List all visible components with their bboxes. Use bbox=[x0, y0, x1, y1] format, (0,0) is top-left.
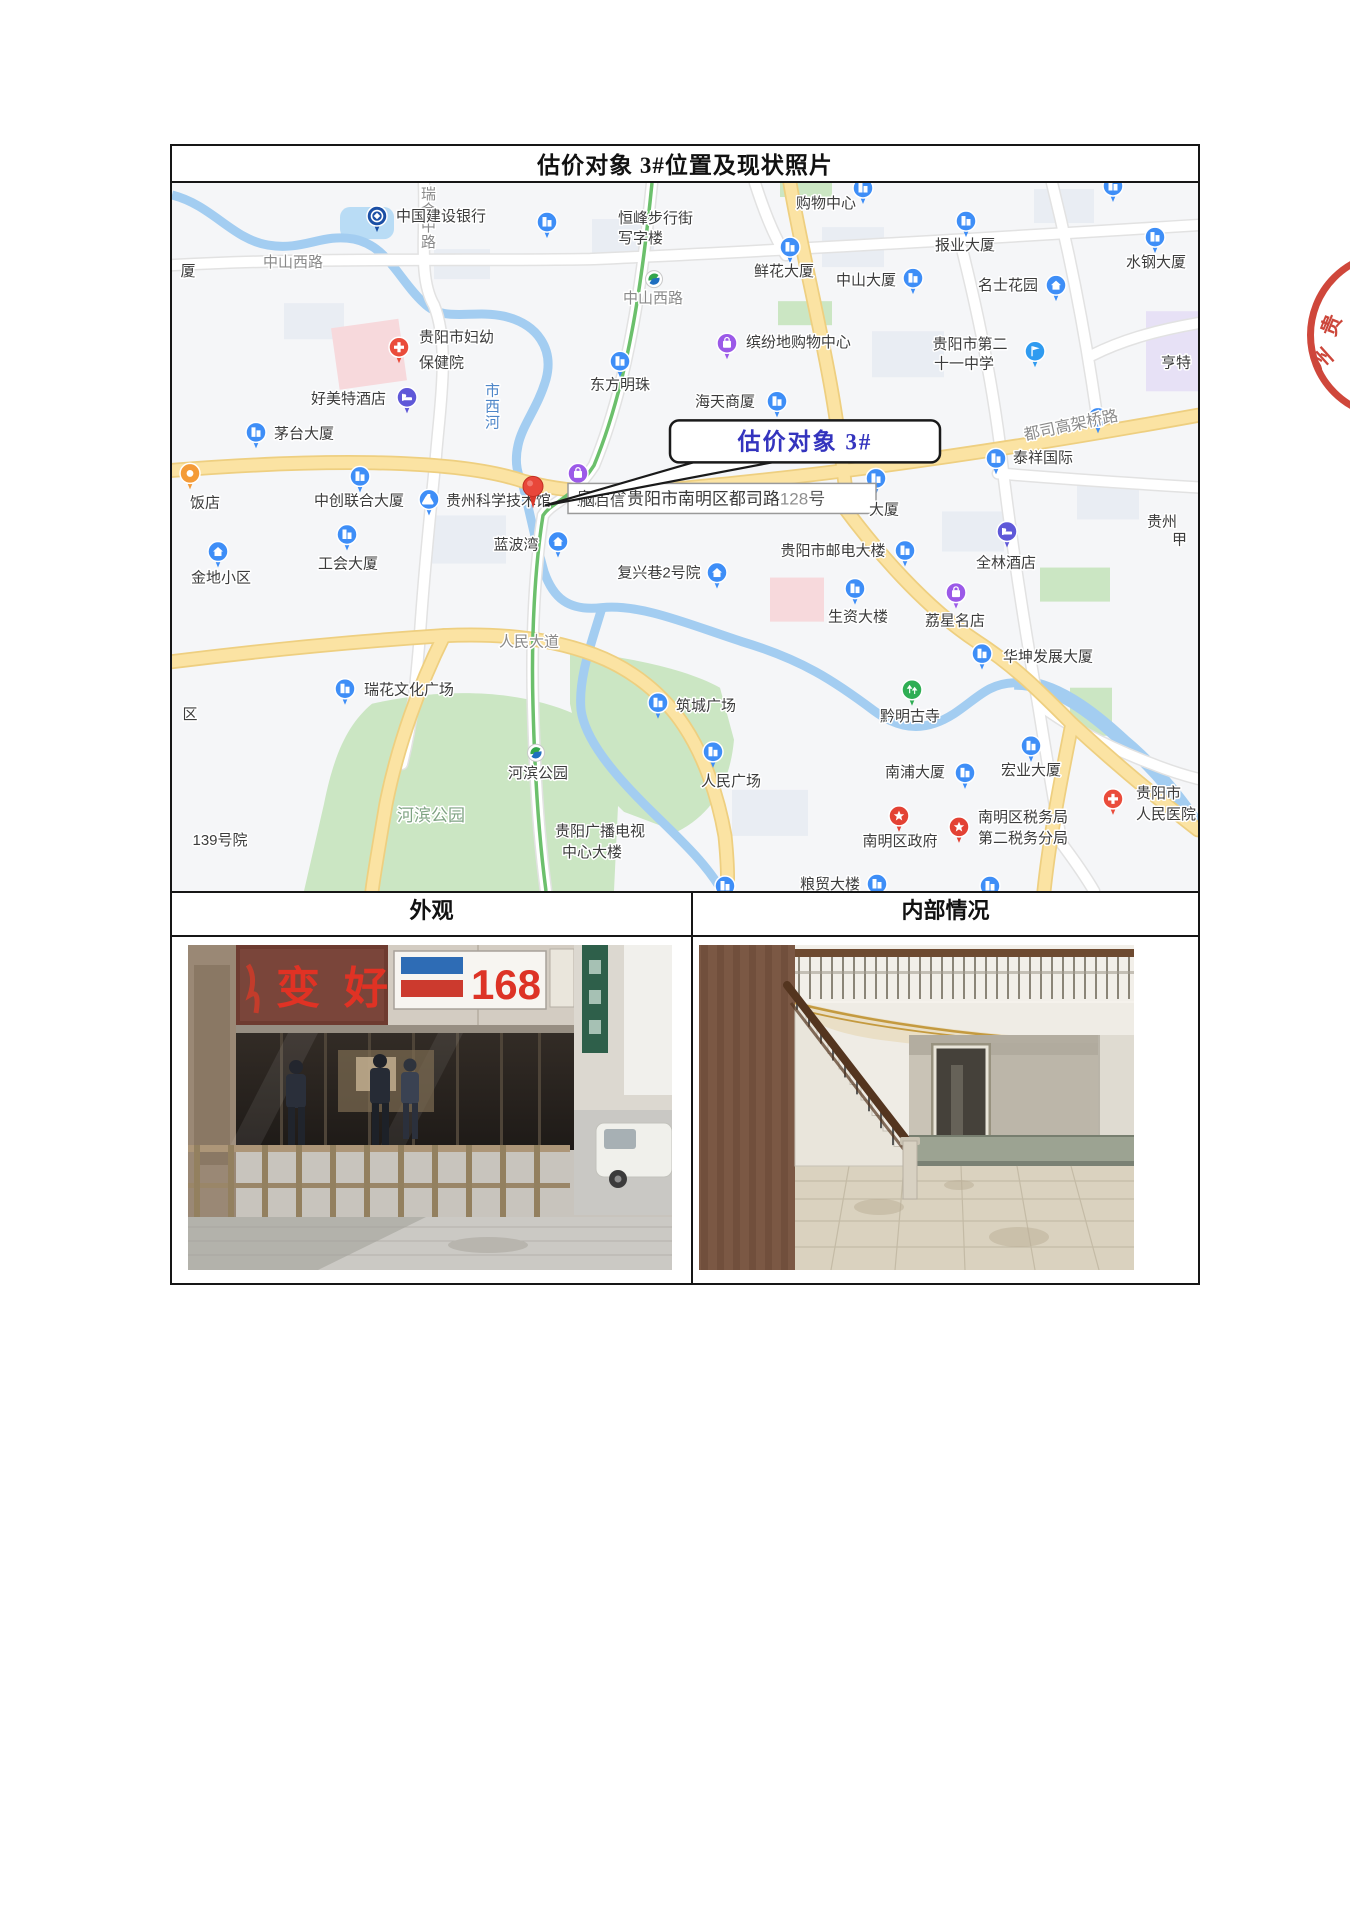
map-label: 恒峰步行街 bbox=[618, 210, 693, 227]
map-label: 南浦大厦 bbox=[885, 764, 945, 781]
map-label: 甲 bbox=[1172, 532, 1187, 549]
map-label: 缤纷地购物中心 bbox=[746, 334, 851, 351]
map-label: 亨特 bbox=[1161, 354, 1191, 371]
mezzanine-handrail bbox=[795, 949, 1134, 957]
map-label: 南明区政府 bbox=[863, 833, 938, 850]
green-vertical-sign bbox=[582, 945, 608, 1053]
map-label: 第二税务分局 bbox=[978, 829, 1068, 847]
map-label: 东方明珠 bbox=[590, 376, 650, 393]
map-image: 中山西路瑞金中路中山西路人民大道都司高架桥路市西河河滨公园中国建设银行恒峰步行街… bbox=[172, 183, 1198, 891]
map-label: 大厦 bbox=[869, 501, 899, 518]
doorway bbox=[931, 1043, 991, 1137]
exterior-header: 外观 bbox=[172, 893, 693, 935]
map-label: 荔星名店 bbox=[925, 613, 985, 630]
map-label: 人民广场 bbox=[701, 773, 761, 790]
metro-station-icon bbox=[528, 744, 545, 761]
map-label: 中国建设银行 bbox=[396, 208, 486, 225]
map-label: 保健院 bbox=[419, 353, 464, 371]
map-label: 海天商厦 bbox=[695, 393, 755, 410]
map-label: 好美特酒店 bbox=[311, 390, 386, 407]
seal-ring-icon bbox=[1307, 256, 1350, 420]
map-label: 华坤发展大厦 bbox=[1003, 649, 1093, 666]
location-map: 中山西路瑞金中路中山西路人民大道都司高架桥路市西河河滨公园中国建设银行恒峰步行街… bbox=[172, 183, 1198, 891]
map-label: 筑城广场 bbox=[676, 698, 736, 715]
sign-168: 168 bbox=[394, 951, 546, 1009]
metro-station-icon bbox=[646, 271, 663, 288]
interior-header: 内部情况 bbox=[693, 893, 1198, 935]
map-label: 粮贸大楼 bbox=[800, 876, 860, 891]
map-label: 名士花园 bbox=[978, 277, 1038, 294]
map-label: 生资大楼 bbox=[828, 609, 888, 626]
map-label: 中山西路 bbox=[263, 254, 323, 271]
map-label: 饭店 bbox=[190, 494, 220, 511]
map-label: 人民大道 bbox=[499, 634, 559, 651]
map-label: 写字楼 bbox=[618, 230, 663, 247]
map-label: 河滨公园 bbox=[508, 765, 568, 782]
map-label: 贵阳市 bbox=[1136, 785, 1181, 802]
map-label: 金地小区 bbox=[191, 570, 251, 587]
map-label: 购物中心 bbox=[796, 195, 856, 212]
interior-photo-cell bbox=[693, 937, 1198, 1283]
map-label: 鲜花大厦 bbox=[754, 263, 814, 280]
callout-text: 估价对象 3# bbox=[737, 428, 873, 454]
map-label: 全林酒店 bbox=[976, 554, 1036, 572]
map-label: 厦 bbox=[180, 263, 195, 280]
map-label: 泰祥国际 bbox=[1013, 449, 1073, 466]
photo-row: 变好 168 bbox=[172, 937, 1198, 1283]
map-label: 中心大楼 bbox=[562, 844, 622, 861]
map-pin bbox=[715, 876, 735, 891]
map-label: 贵州 bbox=[1147, 513, 1177, 530]
map-label: 宏业大厦 bbox=[1001, 762, 1061, 779]
map-label: 水钢大厦 bbox=[1126, 254, 1186, 271]
exterior-photo: 变好 168 bbox=[188, 945, 672, 1270]
map-label: 贵阳广播电视 bbox=[555, 823, 645, 840]
map-label: 茅台大厦 bbox=[274, 425, 334, 442]
svg-text:168: 168 bbox=[471, 961, 541, 1008]
section-header-row: 外观 内部情况 bbox=[172, 891, 1198, 937]
map-label: 市西河 bbox=[485, 382, 500, 431]
map-label: 贵阳市邮电大楼 bbox=[781, 543, 886, 560]
map-label: 139号院 bbox=[193, 831, 248, 849]
map-hospital-block-2 bbox=[770, 578, 824, 622]
map-label: 贵阳市第二 bbox=[933, 335, 1008, 353]
exterior-photo-cell: 变好 168 bbox=[172, 937, 693, 1283]
map-label: 河滨公园 bbox=[397, 806, 465, 825]
map-label: 黔明古寺 bbox=[880, 708, 940, 725]
map-label: 复兴巷2号院 bbox=[617, 564, 700, 582]
photo-location-table: 估价对象 3#位置及现状照片 bbox=[170, 144, 1200, 1285]
map-label: 中山西路 bbox=[623, 290, 683, 307]
map-label: 工会大厦 bbox=[318, 556, 378, 573]
map-pin bbox=[867, 874, 887, 891]
map-label: 贵阳市妇幼 bbox=[419, 329, 494, 346]
wallpaper-wall bbox=[699, 945, 795, 1270]
map-label: 人民医院 bbox=[1136, 805, 1196, 823]
report-page: 估价对象 3#位置及现状照片 bbox=[0, 0, 1350, 1909]
map-label: 中山大厦 bbox=[836, 272, 896, 289]
tile-floor bbox=[795, 1166, 1134, 1270]
map-label: 蓝波湾 bbox=[494, 537, 539, 554]
red-seal: 贵 州 bbox=[1293, 256, 1350, 420]
map-label: 十一中学 bbox=[934, 355, 994, 372]
map-pin bbox=[980, 876, 1000, 891]
map-label: 区 bbox=[182, 706, 197, 723]
map-label: 报业大厦 bbox=[935, 237, 995, 254]
map-label: 中创联合大厦 bbox=[314, 492, 404, 509]
map-label: 瑞花文化广场 bbox=[364, 682, 454, 699]
map-label: 南明区税务局 bbox=[978, 809, 1068, 826]
page-title: 估价对象 3#位置及现状照片 bbox=[172, 146, 1198, 183]
newel-post bbox=[903, 1141, 917, 1199]
interior-photo bbox=[699, 945, 1134, 1270]
